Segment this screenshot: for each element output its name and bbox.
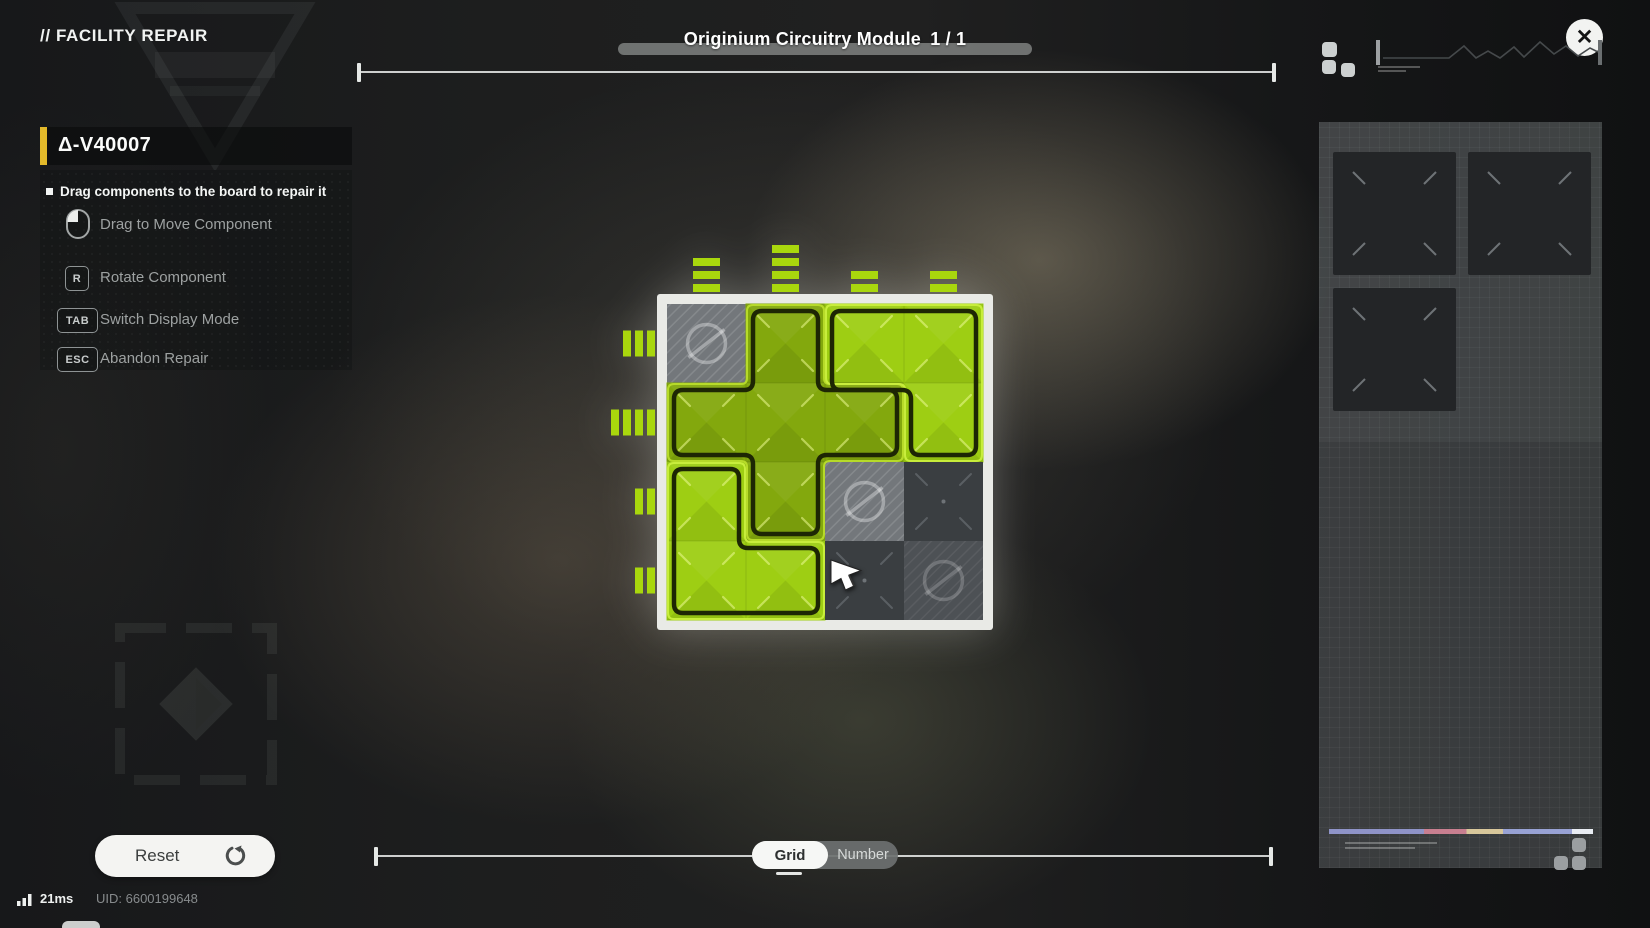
control-label-drag: Drag to Move Component	[100, 216, 272, 233]
control-label-display-mode: Switch Display Mode	[100, 311, 239, 328]
tray-corner-squares-icon	[1554, 856, 1568, 870]
slot-corner-marks	[1333, 288, 1456, 411]
reset-label: Reset	[135, 846, 179, 866]
display-mode-toggle[interactable]: Grid Number	[752, 841, 898, 869]
module-title-label: Originium Circuitry Module	[684, 29, 921, 49]
repair-board[interactable]	[550, 220, 1020, 650]
slot-corner-marks	[1468, 152, 1591, 275]
hint-text: Drag components to the board to repair i…	[60, 184, 326, 199]
module-title: Originium Circuitry Module 1 / 1	[470, 29, 1180, 50]
module-title-counter: 1 / 1	[930, 29, 966, 49]
tray-squares-icon	[1341, 63, 1355, 77]
module-id-strip: Δ-V40007	[40, 127, 352, 165]
tray-fine-print	[1345, 847, 1415, 849]
uid-value: UID: 6600199648	[96, 891, 198, 906]
module-id-accent-bar	[40, 127, 47, 165]
cursor-icon	[828, 557, 868, 597]
tray-fine-print	[1378, 66, 1420, 68]
tray-corner-squares-icon	[1572, 856, 1586, 870]
toggle-option-number[interactable]: Number	[828, 841, 898, 869]
slot-corner-marks	[1333, 152, 1456, 275]
tray-color-stripe	[1329, 829, 1593, 834]
facility-repair-screen: // FACILITY REPAIR Originium Circuitry M…	[0, 0, 1650, 928]
component-slot[interactable]	[1333, 288, 1456, 411]
blueprint-emblem	[100, 608, 292, 800]
hint-bullet	[46, 188, 53, 195]
component-slot[interactable]	[1333, 152, 1456, 275]
toggle-option-grid[interactable]: Grid	[752, 841, 828, 869]
tray-fine-print	[1345, 842, 1437, 844]
tray-fine-print	[1378, 70, 1406, 72]
reset-button[interactable]: Reset	[95, 835, 275, 877]
tray-corner-squares-icon	[1572, 838, 1586, 852]
reset-rotate-icon	[225, 845, 247, 867]
component-slot[interactable]	[1468, 152, 1591, 275]
signal-waveform-graph	[1374, 38, 1606, 68]
control-label-abandon: Abandon Repair	[100, 350, 208, 367]
top-ruler-line	[361, 71, 1272, 73]
key-r: R	[65, 266, 89, 291]
key-esc: ESC	[57, 347, 98, 372]
network-signal-icon	[17, 893, 35, 906]
key-tab: TAB	[57, 308, 98, 333]
toggle-underline	[776, 872, 802, 875]
ping-value: 21ms	[40, 891, 73, 906]
module-id: Δ-V40007	[58, 134, 151, 157]
cropped-ui-pill	[62, 921, 100, 928]
top-ruler-right-tick	[1272, 63, 1276, 82]
mouse-left-icon	[64, 207, 92, 241]
control-label-rotate: Rotate Component	[100, 269, 226, 286]
bottom-ruler-right-tick	[1269, 847, 1273, 866]
page-title: // FACILITY REPAIR	[40, 26, 208, 46]
tray-squares-icon	[1322, 60, 1336, 74]
tray-squares-icon	[1322, 42, 1337, 57]
